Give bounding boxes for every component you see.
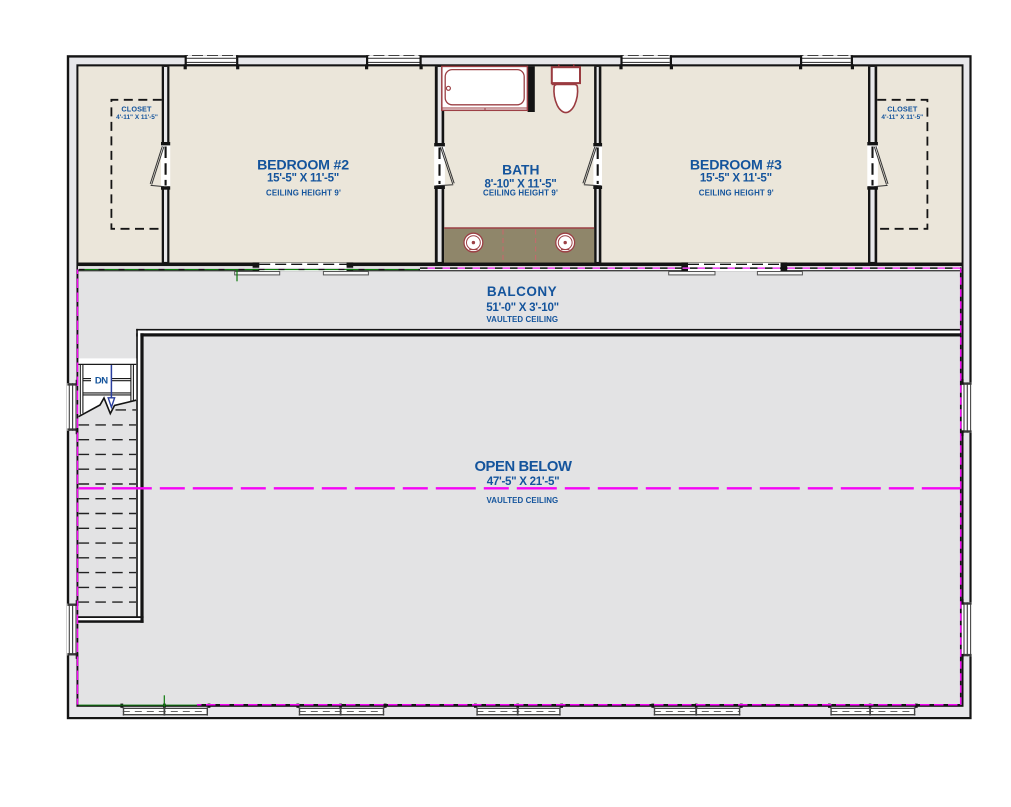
svg-text:DN: DN — [95, 376, 108, 387]
svg-text:VAULTED CEILING: VAULTED CEILING — [486, 315, 558, 324]
svg-text:OPEN BELOW: OPEN BELOW — [474, 459, 572, 475]
svg-text:VAULTED CEILING: VAULTED CEILING — [487, 496, 559, 505]
svg-text:4'-11" X 11'-5": 4'-11" X 11'-5" — [881, 114, 923, 121]
svg-text:CLOSET: CLOSET — [887, 104, 918, 113]
svg-text:CEILING HEIGHT 9': CEILING HEIGHT 9' — [699, 189, 774, 198]
svg-text:CEILING HEIGHT 9': CEILING HEIGHT 9' — [483, 189, 558, 198]
svg-text:47'-5" X 21'-5": 47'-5" X 21'-5" — [487, 475, 560, 488]
svg-text:CEILING HEIGHT 9': CEILING HEIGHT 9' — [266, 188, 341, 197]
svg-text:BATH: BATH — [502, 163, 539, 178]
svg-text:CLOSET: CLOSET — [121, 104, 152, 113]
svg-text:15'-5" X 11'-5": 15'-5" X 11'-5" — [700, 172, 772, 185]
svg-text:15'-5" X 11'-5": 15'-5" X 11'-5" — [267, 172, 339, 185]
svg-text:51'-0" X 3'-10": 51'-0" X 3'-10" — [486, 301, 559, 314]
svg-text:4'-11" X 11'-5": 4'-11" X 11'-5" — [116, 114, 158, 121]
svg-text:BALCONY: BALCONY — [487, 284, 557, 299]
